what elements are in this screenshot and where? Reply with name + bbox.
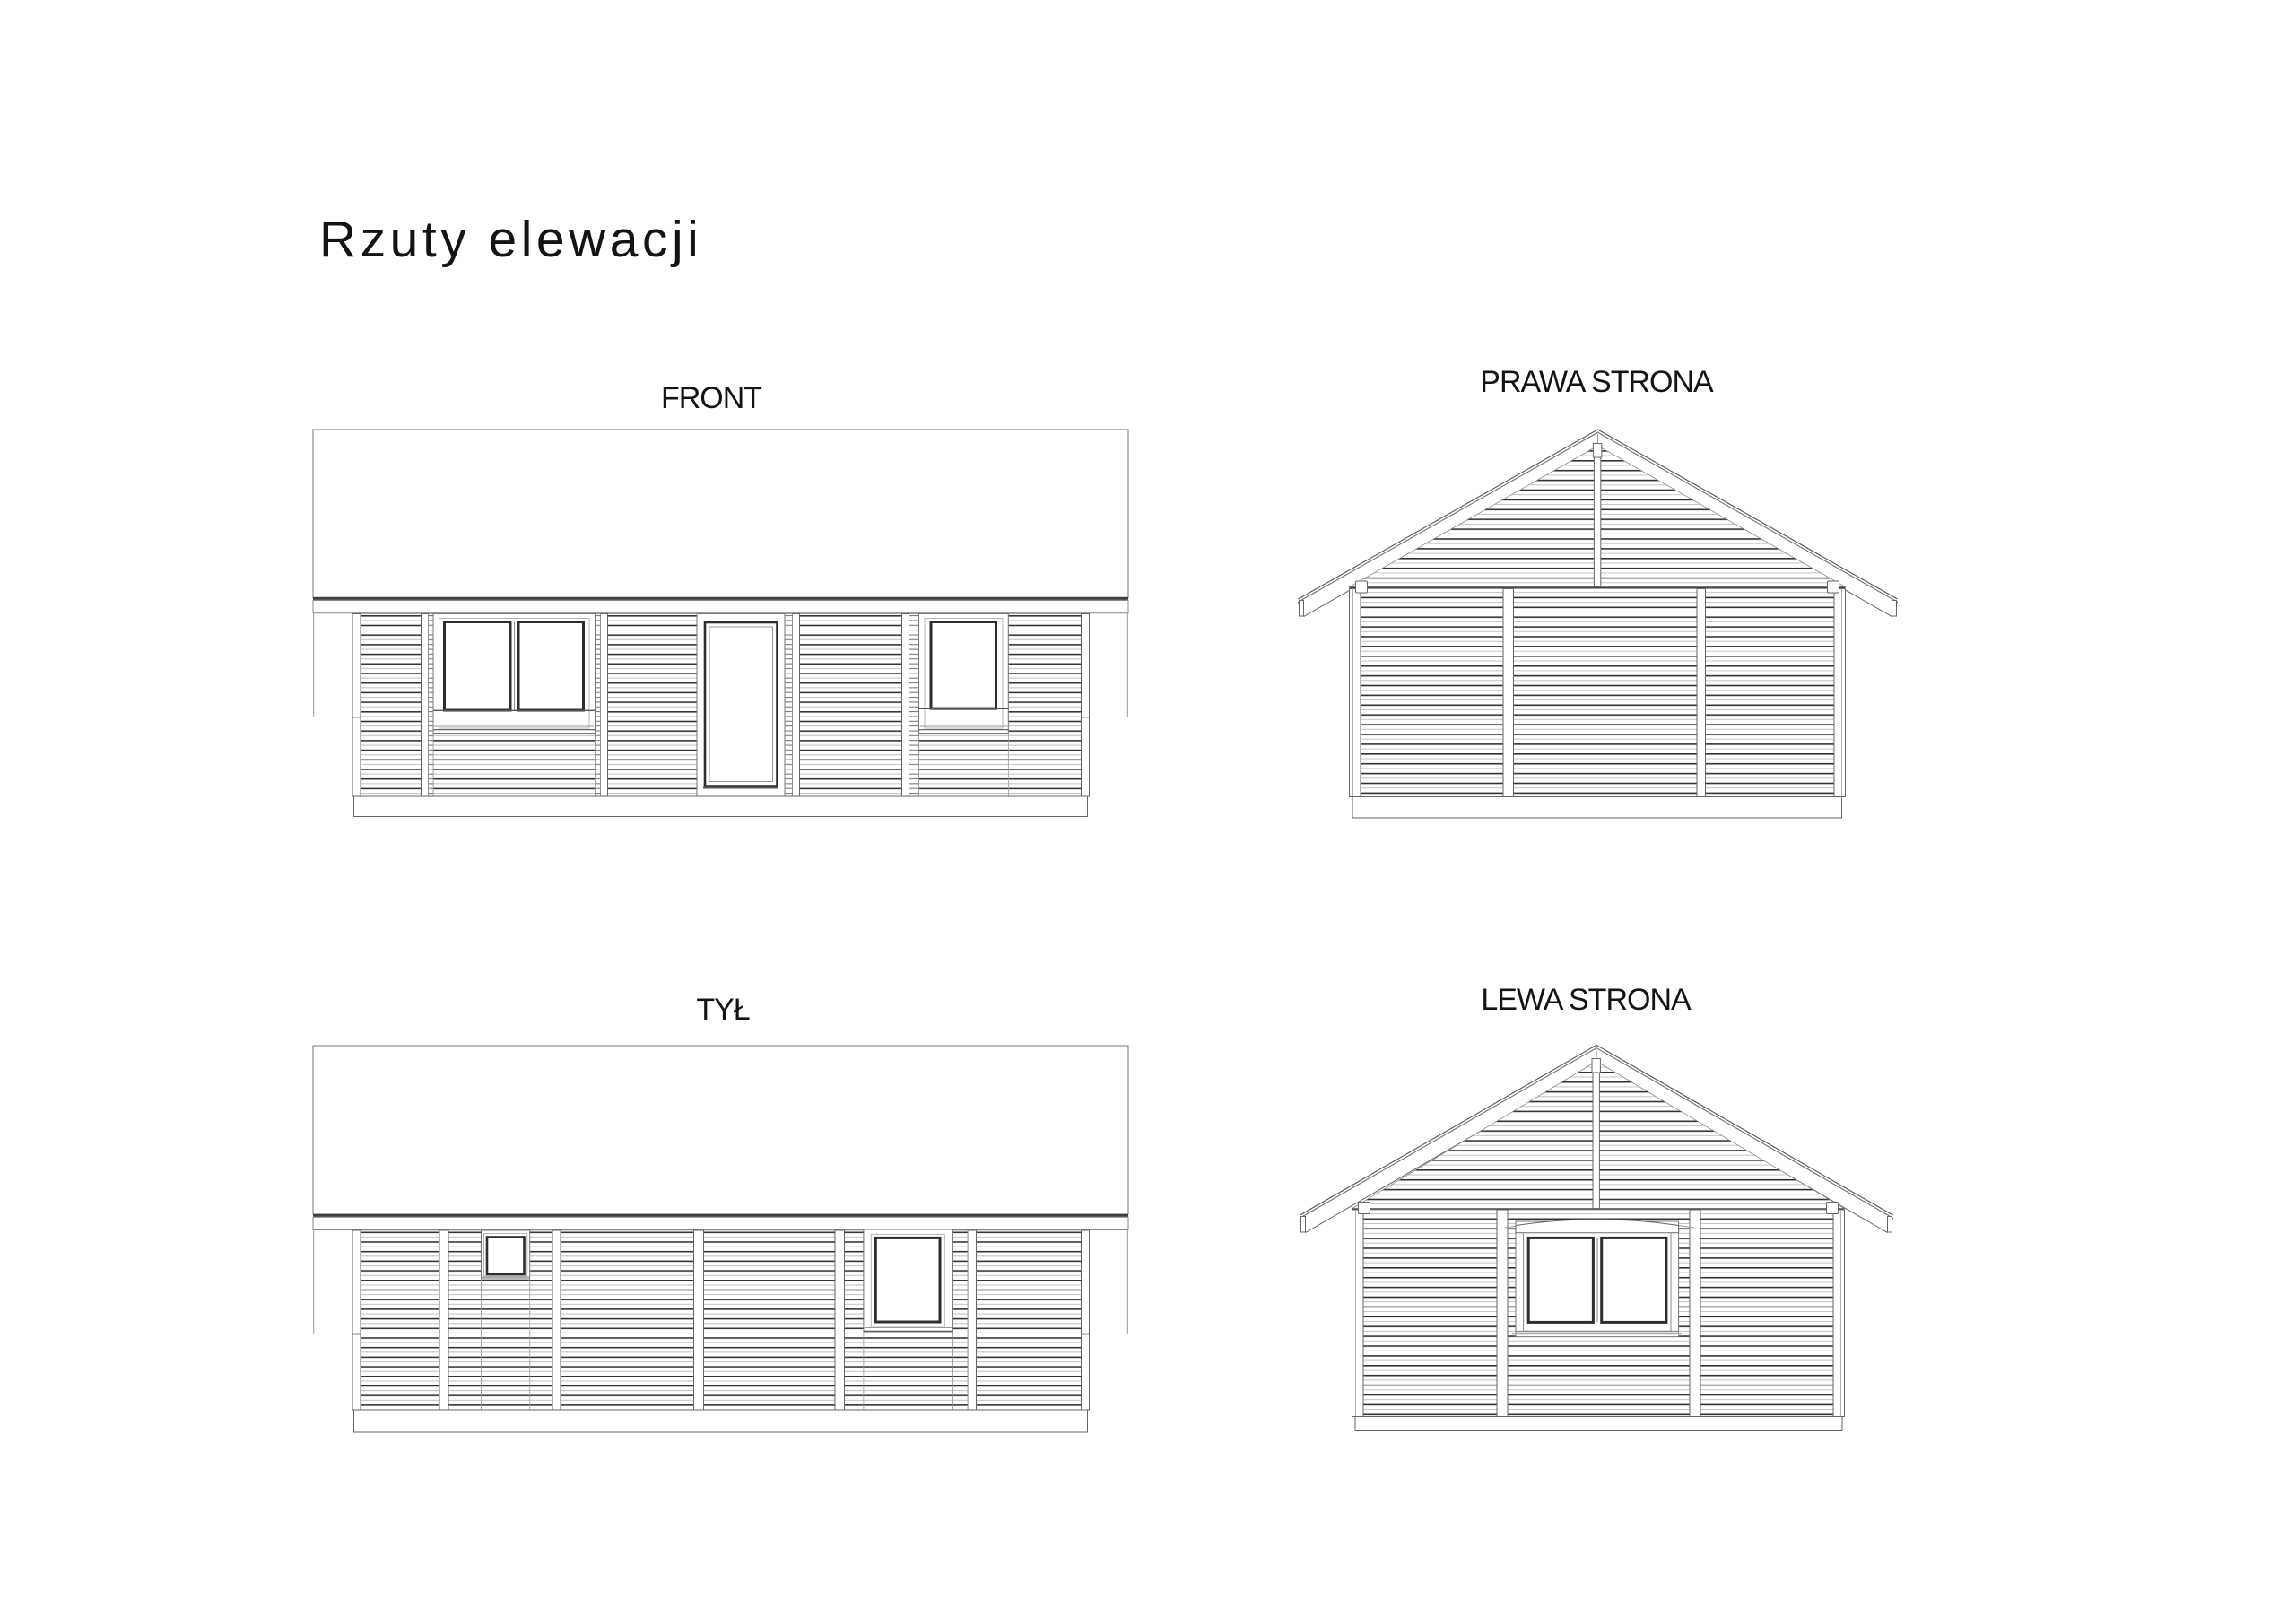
svg-text:FRONT: FRONT <box>661 381 761 415</box>
svg-text:Rzuty elewacji: Rzuty elewacji <box>319 211 702 268</box>
svg-text:LEWA STRONA: LEWA STRONA <box>1481 983 1692 1017</box>
svg-text:PRAWA STRONA: PRAWA STRONA <box>1480 365 1714 399</box>
svg-text:TYŁ: TYŁ <box>696 993 749 1027</box>
